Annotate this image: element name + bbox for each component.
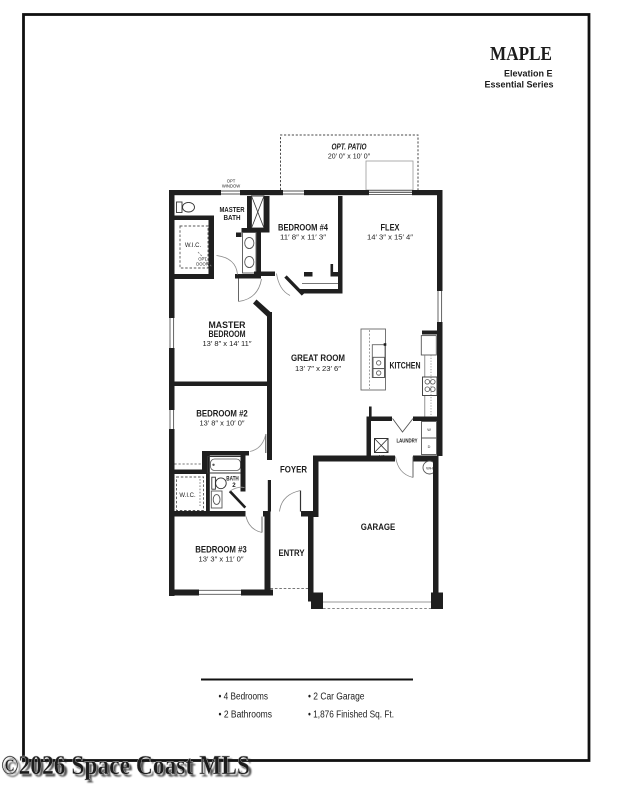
svg-text:• 2 Car Garage: • 2 Car Garage [308,692,365,703]
svg-text:• 1,876 Finished Sq. Ft.: • 1,876 Finished Sq. Ft. [308,710,394,721]
svg-text:BEDROOM #2: BEDROOM #2 [196,409,248,419]
svg-text:BEDROOM: BEDROOM [209,329,246,339]
svg-text:KITCHEN: KITCHEN [390,361,421,371]
svg-text:Essential Series: Essential Series [484,80,553,90]
svg-text:FOYER: FOYER [280,464,307,475]
svg-text:FLEX: FLEX [381,223,400,233]
svg-text:GARAGE: GARAGE [361,522,396,533]
svg-text:11′ 8″ x 11′ 3″: 11′ 8″ x 11′ 3″ [280,235,327,242]
svg-text:13′ 8″ x 10′ 0″: 13′ 8″ x 10′ 0″ [200,421,246,428]
svg-text:LAUNDRY: LAUNDRY [397,439,418,445]
svg-text:GREAT ROOM: GREAT ROOM [291,353,345,364]
svg-text:DOOR: DOOR [196,262,209,267]
svg-text:MAPLE: MAPLE [490,44,552,65]
svg-text:D: D [428,445,431,449]
svg-text:13′ 7″ x 23′ 6″: 13′ 7″ x 23′ 6″ [295,366,342,373]
svg-text:BATH: BATH [224,213,241,222]
svg-text:• 4 Bedrooms: • 4 Bedrooms [219,692,269,703]
svg-text:BEDROOM #4: BEDROOM #4 [278,223,328,233]
svg-text:ENTRY: ENTRY [279,547,306,558]
svg-text:20′ 0″ x 10′ 0″: 20′ 0″ x 10′ 0″ [328,154,371,161]
svg-text:W.I.C.: W.I.C. [179,493,196,499]
svg-text:BEDROOM #3: BEDROOM #3 [195,545,247,555]
svg-text:W: W [427,428,431,432]
svg-text:Elevation E: Elevation E [504,69,553,79]
svg-text:©2026 Space Coast MLS: ©2026 Space Coast MLS [1,750,250,780]
svg-text:14′ 3″ x 15′ 4″: 14′ 3″ x 15′ 4″ [367,235,414,242]
svg-text:WH: WH [426,466,433,471]
svg-text:13′ 8″ x 14′ 11″: 13′ 8″ x 14′ 11″ [203,341,253,348]
svg-text:OPT. PATIO: OPT. PATIO [332,143,367,152]
svg-text:• 2 Bathrooms: • 2 Bathrooms [219,710,273,721]
svg-text:13′ 3″ x 11′ 0″: 13′ 3″ x 11′ 0″ [199,557,245,564]
svg-text:W.I.C.: W.I.C. [185,243,202,249]
svg-text:WINDOW: WINDOW [222,183,240,188]
